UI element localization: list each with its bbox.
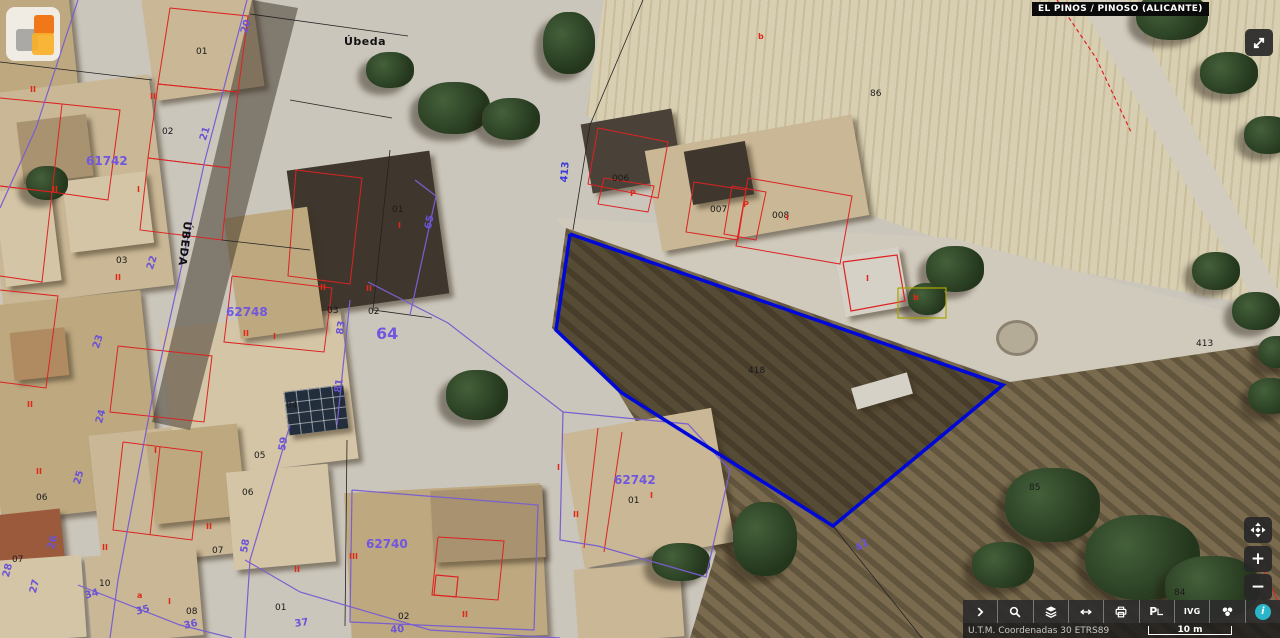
map-label: 006 [612,175,629,184]
printer-icon [1114,605,1128,619]
search-button[interactable] [997,600,1032,623]
map-label: 07 [212,547,223,556]
map-label: II [115,274,121,282]
chevron-right-icon [973,605,987,619]
map-label: I [273,333,276,341]
zoom-in-button[interactable]: + [1244,546,1272,572]
map-label: 05 [254,452,265,461]
map-canvas[interactable]: ÚbedaÚBEDA010203030201040506060707100801… [0,0,1280,638]
map-label: 413 [560,161,572,183]
basemap-button[interactable] [1209,600,1244,623]
map-label: II [36,468,42,476]
map-label: 64 [376,326,398,342]
map-label: 62742 [614,474,656,486]
map-label: 01 [275,604,286,613]
expand-arrows-icon [1251,35,1267,51]
map-label: a [137,592,142,600]
info-button[interactable]: i [1245,600,1280,623]
map-label: 418 [748,367,765,376]
map-label: 02 [398,613,409,622]
street-view-button[interactable]: P [1139,600,1174,623]
map-label: 62740 [366,538,408,550]
bottom-toolbar: P IVG i [963,600,1280,623]
map-label: I [154,447,157,455]
pan-compass-icon [1250,522,1266,538]
ivg-button[interactable]: IVG [1174,600,1209,623]
map-label: 86 [870,90,881,99]
map-label: II [150,93,156,101]
map-label: b [913,294,919,302]
map-label: 65 [424,214,437,230]
catastro-logo[interactable] [6,7,60,61]
map-label: I [650,492,653,500]
zoom-out-button[interactable]: − [1244,574,1272,600]
map-label: 83 [336,320,348,335]
map-label: II [102,544,108,552]
fullscreen-button[interactable] [1245,29,1273,56]
map-label: 10 [99,580,110,589]
map-label: Úbeda [344,36,386,47]
wheel-icon [1220,604,1235,619]
expand-toolbar-button[interactable] [963,600,997,623]
map-label: II [366,285,372,293]
map-label: 27 [29,578,42,594]
map-label: 81 [334,378,346,393]
ivg-label: IVG [1184,607,1201,616]
p-pointer-arrow [1157,607,1164,617]
map-label: II [27,401,33,409]
map-label: 84 [1174,589,1185,598]
logo-orange-square [34,15,54,35]
logo-amber-square [32,33,54,55]
map-label: 36 [183,619,199,632]
map-label: b [758,33,764,41]
map-label: 26 [47,534,60,550]
map-label: 01 [392,206,403,215]
map-label: 61742 [86,155,128,167]
map-label: 02 [368,308,379,317]
map-label: 24 [95,409,108,425]
map-label: II [462,611,468,619]
map-label: 40 [390,625,405,636]
map-label: II [294,566,300,574]
map-label: 28 [2,562,15,578]
map-label: ÚBEDA [177,221,193,267]
map-label: II [52,186,58,194]
map-label: 01 [196,48,207,57]
map-label: 62748 [226,306,268,318]
cadastral-map-viewer: ÚbedaÚBEDA010203030201040506060707100801… [0,0,1280,638]
map-label: I [168,598,171,606]
map-label: 59 [278,436,290,451]
map-label: II [320,284,326,292]
map-labels-layer: ÚbedaÚBEDA010203030201040506060707100801… [0,0,1280,638]
projection-label: U.T.M. Coordenadas 30 ETRS89 [968,626,1109,636]
map-label: II [243,330,249,338]
print-button[interactable] [1103,600,1138,623]
map-label: 21 [199,126,213,142]
measure-button[interactable] [1068,600,1103,623]
map-label: II [206,523,212,531]
status-bar: U.T.M. Coordenadas 30 ETRS89 10 m [963,623,1280,638]
map-label: 34 [84,588,100,601]
map-label: 22 [146,255,160,271]
map-label: 58 [240,538,252,553]
map-label: 04 [286,402,297,411]
map-label: 42 [854,538,871,554]
map-label: 35 [135,604,151,617]
map-label: 413 [1196,340,1213,349]
map-label: 20 [240,19,254,35]
map-label: I [866,275,869,283]
map-label: 06 [36,494,47,503]
municipality-label: EL PINOS / PINOSO (ALICANTE) [1032,2,1209,16]
map-label: 03 [327,307,338,316]
map-label: 23 [92,334,106,350]
horizontal-arrows-icon [1079,605,1093,619]
map-label: 08 [186,608,197,617]
map-label: P [743,201,749,209]
map-label: I [398,222,401,230]
p-pointer-icon: P [1149,605,1157,618]
map-label: I [786,214,789,222]
map-label: 25 [73,470,86,486]
map-label: 01 [628,497,639,506]
map-label: 85 [1029,484,1040,493]
map-label: 03 [116,257,127,266]
layers-icon [1044,605,1058,619]
map-label: P [630,190,636,198]
map-label: II [30,86,36,94]
map-label: I [557,464,560,472]
scale-label: 10 m [1153,625,1227,635]
map-label: 06 [242,489,253,498]
map-label: I [137,186,140,194]
search-icon [1008,605,1022,619]
pan-button[interactable] [1244,517,1272,543]
map-label: 007 [710,206,727,215]
map-label: II [573,511,579,519]
info-icon: i [1255,604,1271,620]
map-label: 37 [294,618,309,630]
layers-button[interactable] [1033,600,1068,623]
map-label: III [349,553,358,561]
map-label: 02 [162,128,173,137]
